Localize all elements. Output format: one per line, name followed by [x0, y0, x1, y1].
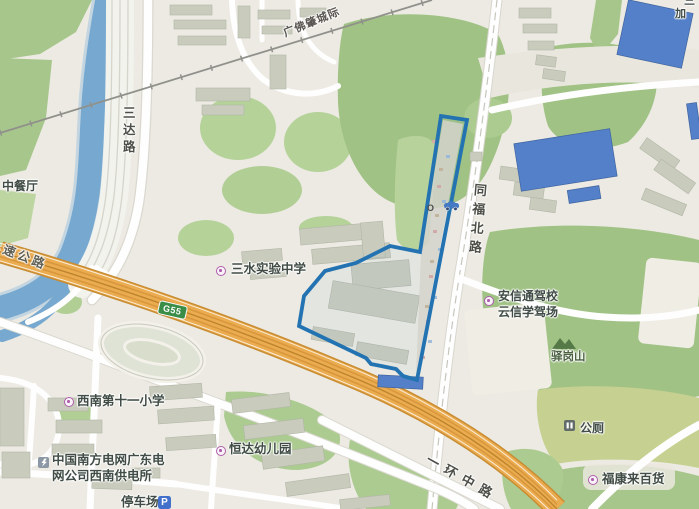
driving-school-poi-icon[interactable]: [484, 296, 494, 306]
power-grid-icon: [38, 457, 49, 468]
poi-label-restaurant[interactable]: 中餐厅: [2, 180, 38, 193]
poi-label-department-store[interactable]: 福康来百货: [602, 473, 665, 487]
department-store-poi-icon[interactable]: [588, 475, 598, 485]
middle-school-poi-icon[interactable]: [216, 266, 226, 276]
road-label-sanda: 三达路: [120, 106, 134, 157]
primary-school-poi-icon[interactable]: [64, 397, 74, 407]
edge-label-partial-2: 加: [675, 8, 686, 20]
edge-label-partial-1: 三: [684, 0, 695, 7]
poi-label-hill[interactable]: 驿岗山: [551, 351, 586, 364]
parking-p-icon[interactable]: P: [158, 496, 171, 509]
poi-label-public-toilet[interactable]: 公厕: [580, 422, 604, 435]
poi-label-driving-school[interactable]: 安信通驾校 云信学驾场: [498, 288, 558, 320]
kindergarten-poi-icon[interactable]: [216, 446, 226, 456]
poi-label-kindergarten[interactable]: 恒达幼儿园: [229, 443, 292, 457]
toilet-icon: [564, 420, 575, 431]
poi-label-middle-school[interactable]: 三水实验中学: [231, 263, 306, 277]
map-canvas[interactable]: O 三达路 广佛肇城际 速公路 同福北路 一环中路 G55 中餐厅 三水实验中学…: [0, 0, 699, 509]
poi-label-parking[interactable]: 停车场: [121, 496, 159, 509]
sports-track: [95, 315, 208, 389]
poi-label-power-company[interactable]: 中国南方电网广东电 网公司西南供电所: [52, 452, 165, 484]
strip-marker-o: O: [427, 203, 434, 213]
poi-label-primary-school[interactable]: 西南第十一小学: [77, 395, 165, 409]
